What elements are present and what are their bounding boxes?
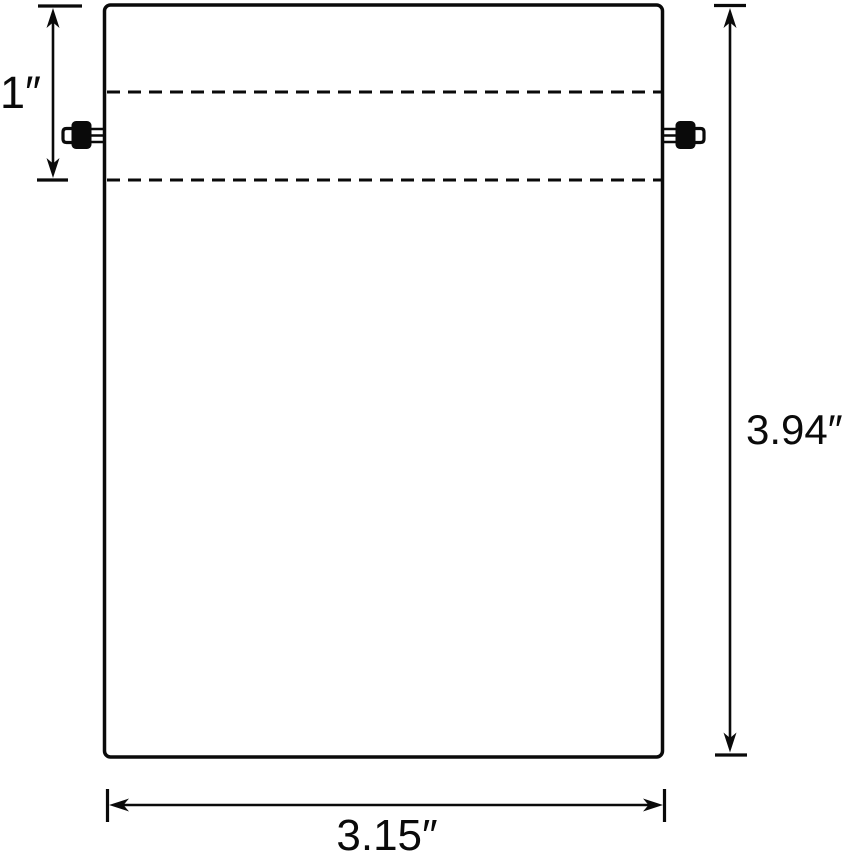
dimension-bag-height: 3.94″ <box>714 6 843 756</box>
cord-lock-right <box>662 121 704 149</box>
cord-lock-left <box>63 121 105 149</box>
dimension-hem-height: 1″ <box>0 6 82 180</box>
toggle-body <box>72 121 92 149</box>
dimension-diagram-page: 1″ 3.94″ 3.15″ <box>0 0 844 856</box>
dimension-label-bag-width: 3.15″ <box>336 811 437 856</box>
dimension-bag-width: 3.15″ <box>108 789 665 856</box>
toggle-body <box>676 121 696 149</box>
dimension-label-hem-height: 1″ <box>0 67 41 118</box>
bag-outline <box>105 5 663 757</box>
dimension-label-bag-height: 3.94″ <box>746 406 843 453</box>
dimension-diagram: 1″ 3.94″ 3.15″ <box>0 0 844 856</box>
